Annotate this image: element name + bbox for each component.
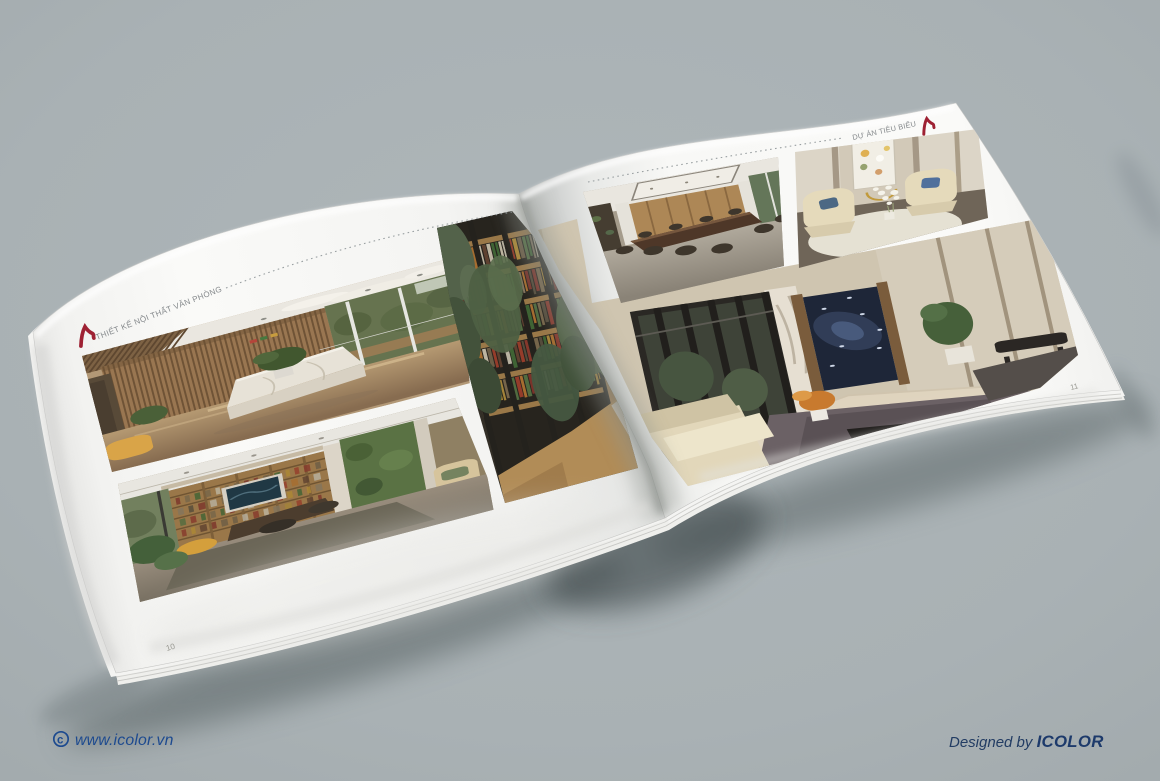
svg-text:www.icolor.vn: www.icolor.vn — [75, 732, 174, 749]
svg-text:Designed by ICOLOR: Designed by ICOLOR — [949, 732, 1104, 751]
svg-text:c: c — [57, 735, 64, 747]
